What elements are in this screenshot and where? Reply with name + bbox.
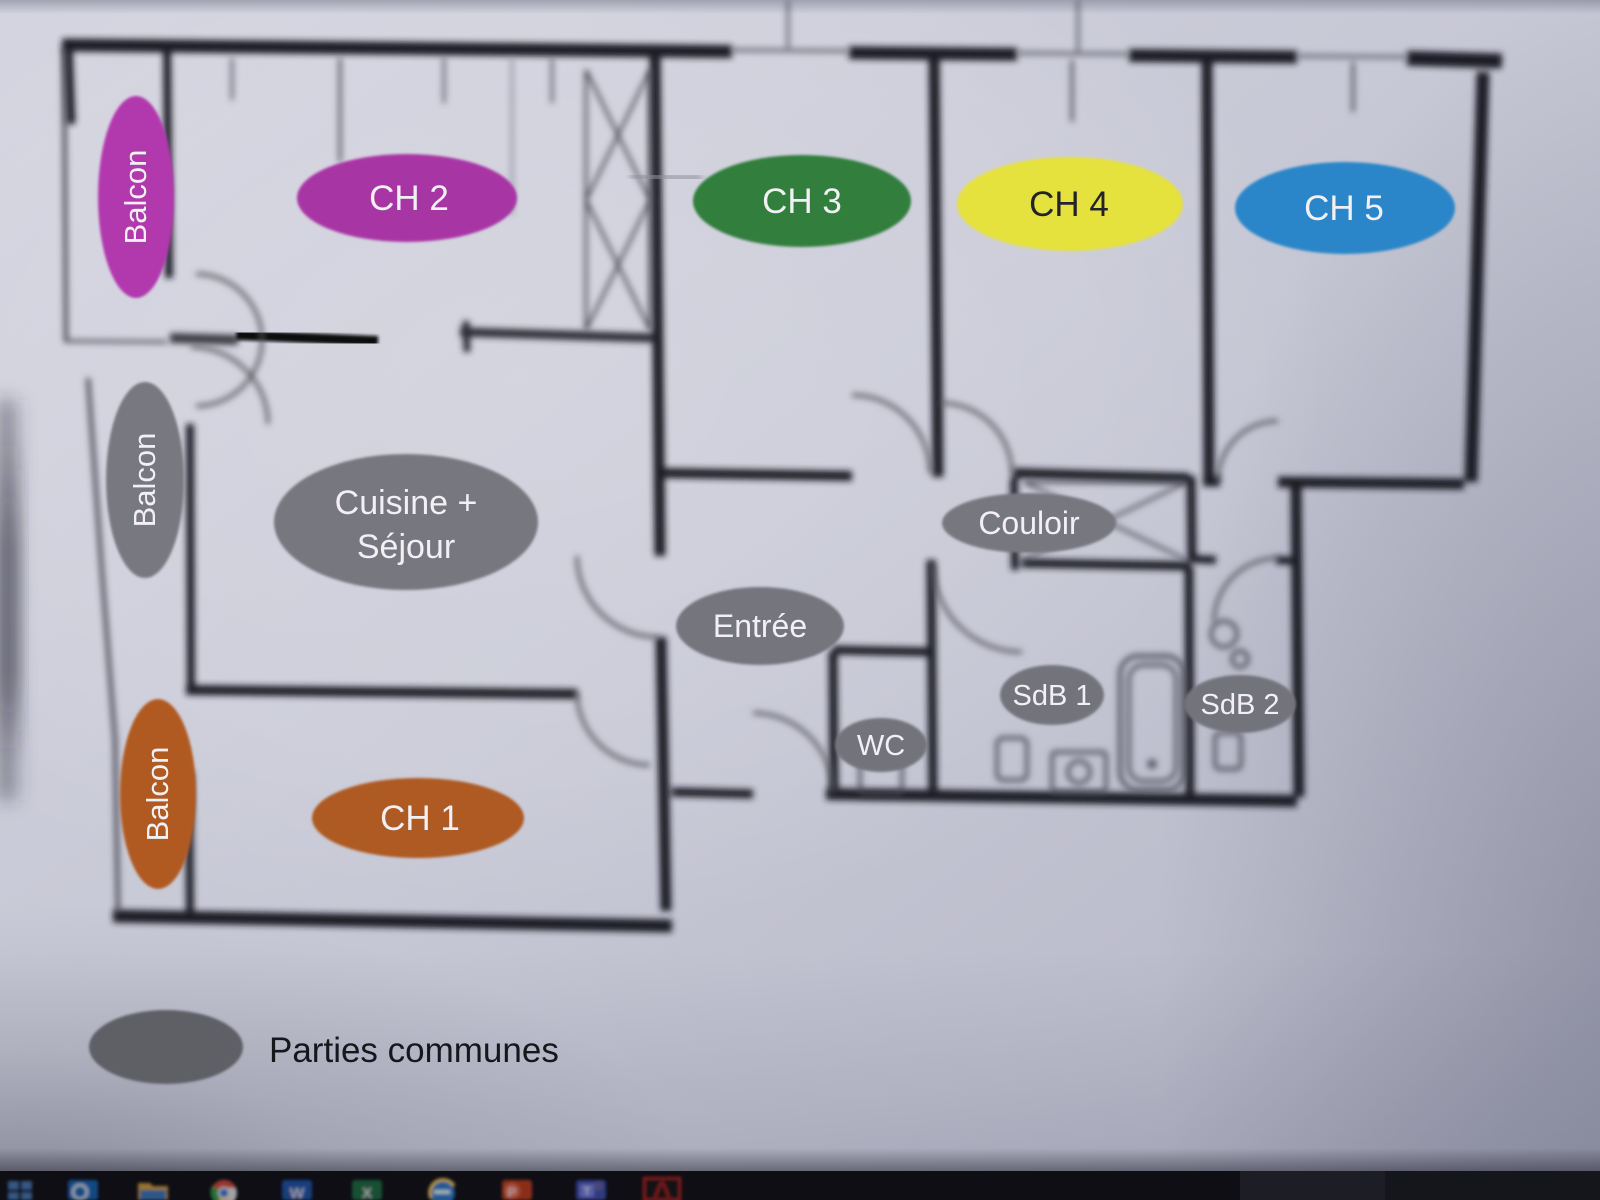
svg-text:Cuisine +: Cuisine + — [335, 484, 478, 522]
svg-text:Balcon: Balcon — [127, 433, 162, 528]
svg-text:CH 2: CH 2 — [369, 179, 449, 218]
svg-text:X: X — [362, 1185, 372, 1200]
svg-text:Balcon: Balcon — [118, 150, 153, 245]
svg-text:SdB 1: SdB 1 — [1013, 680, 1092, 712]
svg-text:P: P — [508, 1185, 517, 1200]
svg-text:SdB 2: SdB 2 — [1201, 689, 1280, 721]
svg-text:CH 3: CH 3 — [762, 182, 842, 221]
svg-text:Entrée: Entrée — [713, 608, 807, 644]
svg-text:Couloir: Couloir — [978, 505, 1080, 541]
svg-text:Parties communes: Parties communes — [269, 1031, 559, 1070]
svg-text:W: W — [290, 1185, 305, 1200]
svg-text:Balcon: Balcon — [140, 747, 175, 842]
svg-text:Séjour: Séjour — [357, 528, 455, 566]
svg-text:WC: WC — [857, 730, 905, 762]
svg-text:T: T — [584, 1186, 591, 1198]
svg-text:CH 1: CH 1 — [380, 799, 460, 838]
svg-text:CH 5: CH 5 — [1304, 189, 1384, 228]
svg-text:CH 4: CH 4 — [1029, 185, 1109, 224]
